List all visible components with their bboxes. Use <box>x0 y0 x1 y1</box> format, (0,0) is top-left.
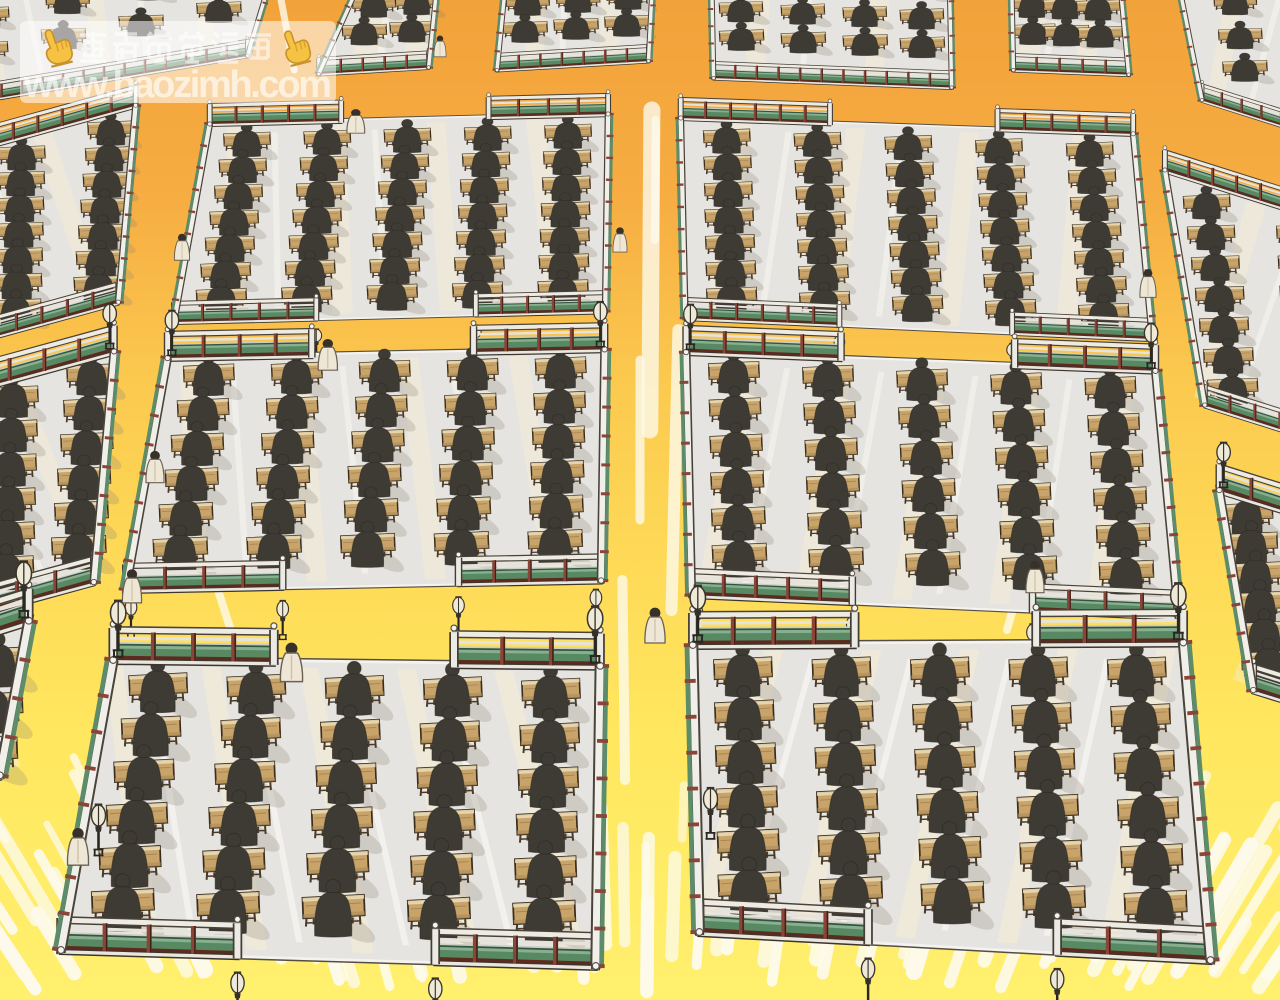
svg-text:www.baozimh.com: www.baozimh.com <box>23 64 332 106</box>
